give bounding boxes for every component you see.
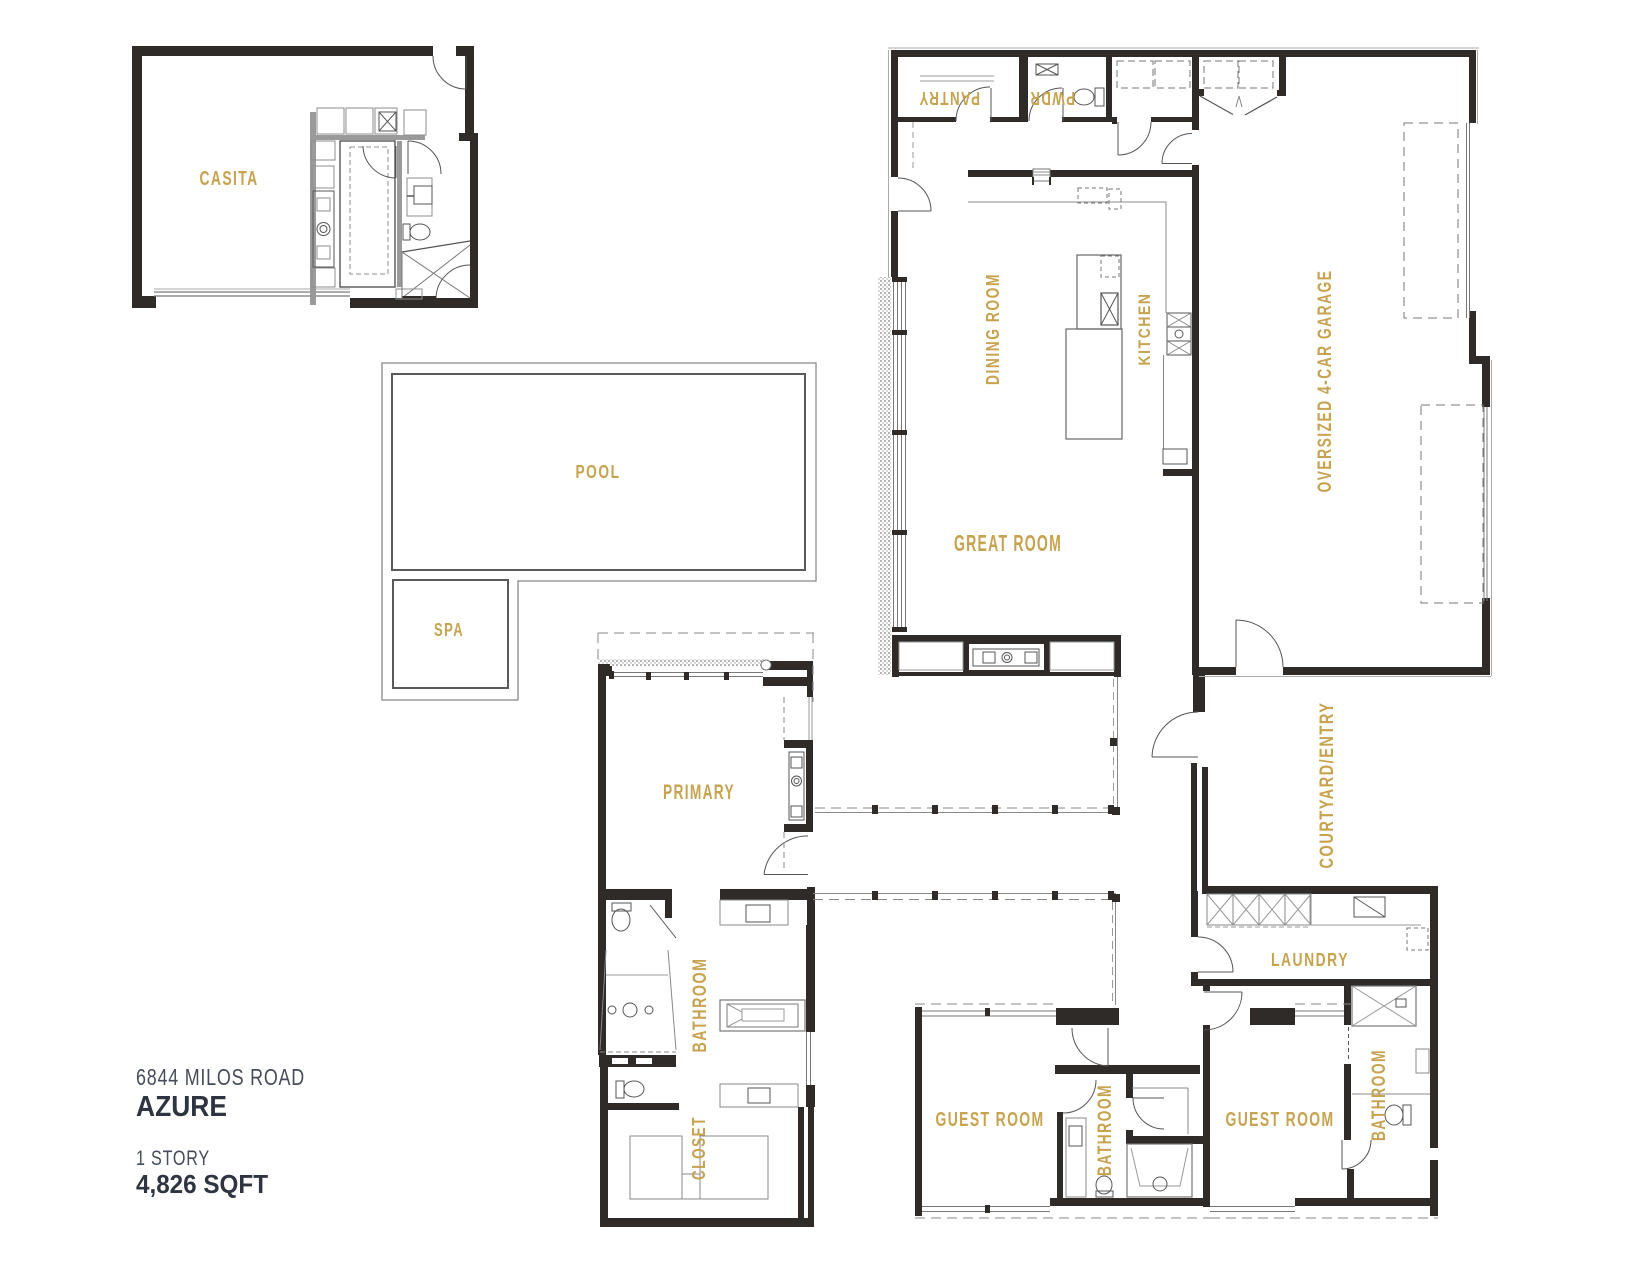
svg-text:LAUNDRY: LAUNDRY [1271,950,1349,970]
svg-text:SPA: SPA [434,620,464,640]
svg-text:PRIMARY: PRIMARY [663,781,735,804]
svg-text:CLOSET: CLOSET [689,1116,709,1180]
svg-text:OVERSIZED 4-CAR GARAGE: OVERSIZED 4-CAR GARAGE [1315,270,1336,493]
svg-text:4,826 SQFT: 4,826 SQFT [136,1169,268,1199]
svg-text:POOL: POOL [576,462,621,482]
svg-text:GUEST ROOM: GUEST ROOM [1226,1109,1335,1131]
svg-text:BATHROOM: BATHROOM [1095,1084,1116,1176]
svg-text:KITCHEN: KITCHEN [1135,293,1154,366]
svg-text:GREAT ROOM: GREAT ROOM [954,530,1062,556]
svg-text:BATHROOM: BATHROOM [690,958,711,1053]
svg-text:DINING ROOM: DINING ROOM [983,273,1003,385]
svg-text:BATHROOM: BATHROOM [1369,1049,1390,1141]
svg-text:1 STORY: 1 STORY [136,1147,210,1170]
svg-text:PWDR: PWDR [1029,88,1075,108]
svg-text:CASITA: CASITA [200,168,259,190]
svg-text:PANTRY: PANTRY [918,88,980,108]
svg-text:6844 MILOS ROAD: 6844 MILOS ROAD [136,1064,305,1090]
svg-text:AZURE: AZURE [136,1091,227,1123]
svg-text:GUEST ROOM: GUEST ROOM [936,1109,1045,1131]
svg-text:COURTYARD/ENTRY: COURTYARD/ENTRY [1317,702,1338,869]
